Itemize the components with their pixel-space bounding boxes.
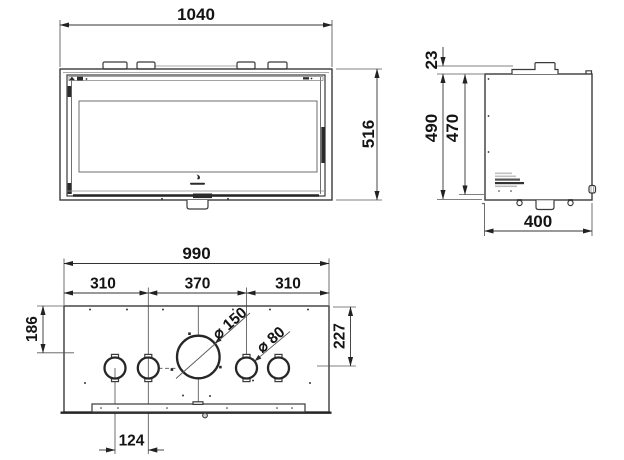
dim-side-height-total: 490	[422, 114, 441, 142]
dim-plan-duct-depth: 227	[332, 323, 349, 349]
door-handle	[321, 127, 325, 163]
dim-plan-segment-center: 370	[185, 276, 211, 293]
dim-plan-flue-depth: 186	[24, 316, 41, 342]
door-hinge-top	[68, 86, 72, 97]
dim-front-height: 516	[359, 120, 378, 148]
dim-plan-width: 990	[182, 244, 210, 263]
dim-side-height-inner: 470	[443, 114, 462, 142]
drawing-canvas: 1040	[0, 0, 624, 460]
dim-front-width: 1040	[177, 5, 215, 24]
dim-side-flue-step: 23	[422, 51, 441, 70]
plan-front-strip	[92, 404, 305, 412]
dim-plan-duct-spacing: 124	[119, 433, 145, 450]
technical-drawing-page: 1040	[0, 0, 624, 460]
dim-plan-segment-left: 310	[90, 276, 116, 293]
dim-plan-segment-right: 310	[275, 276, 301, 293]
door-hinge-bottom	[68, 183, 72, 194]
plan-segment-dimensions: 310 370 310	[64, 276, 329, 294]
dim-side-depth: 400	[524, 212, 552, 231]
